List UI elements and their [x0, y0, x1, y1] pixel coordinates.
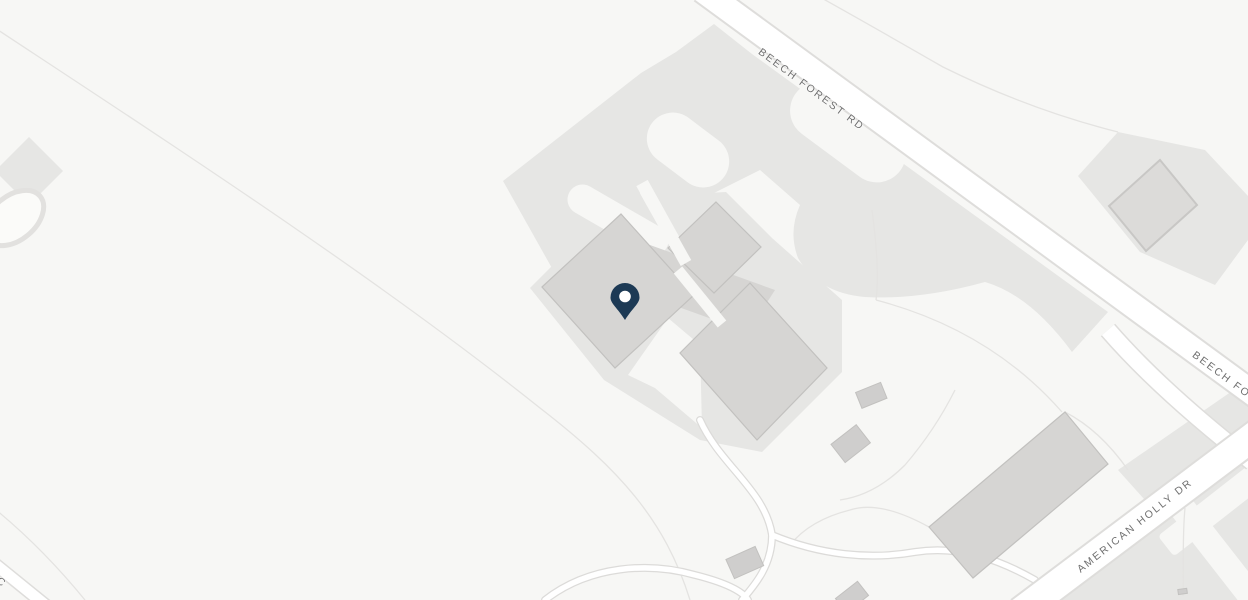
- map-base-layer: [0, 0, 1248, 600]
- road-bottom-left: [0, 505, 85, 600]
- shed-1: [856, 382, 887, 408]
- map-canvas[interactable]: BEECH FOREST RD BEECH FOREST RD AMERICAN…: [0, 0, 1248, 600]
- shed-2: [831, 425, 870, 463]
- shed-4: [835, 581, 868, 600]
- pin-inner-dot: [619, 291, 631, 303]
